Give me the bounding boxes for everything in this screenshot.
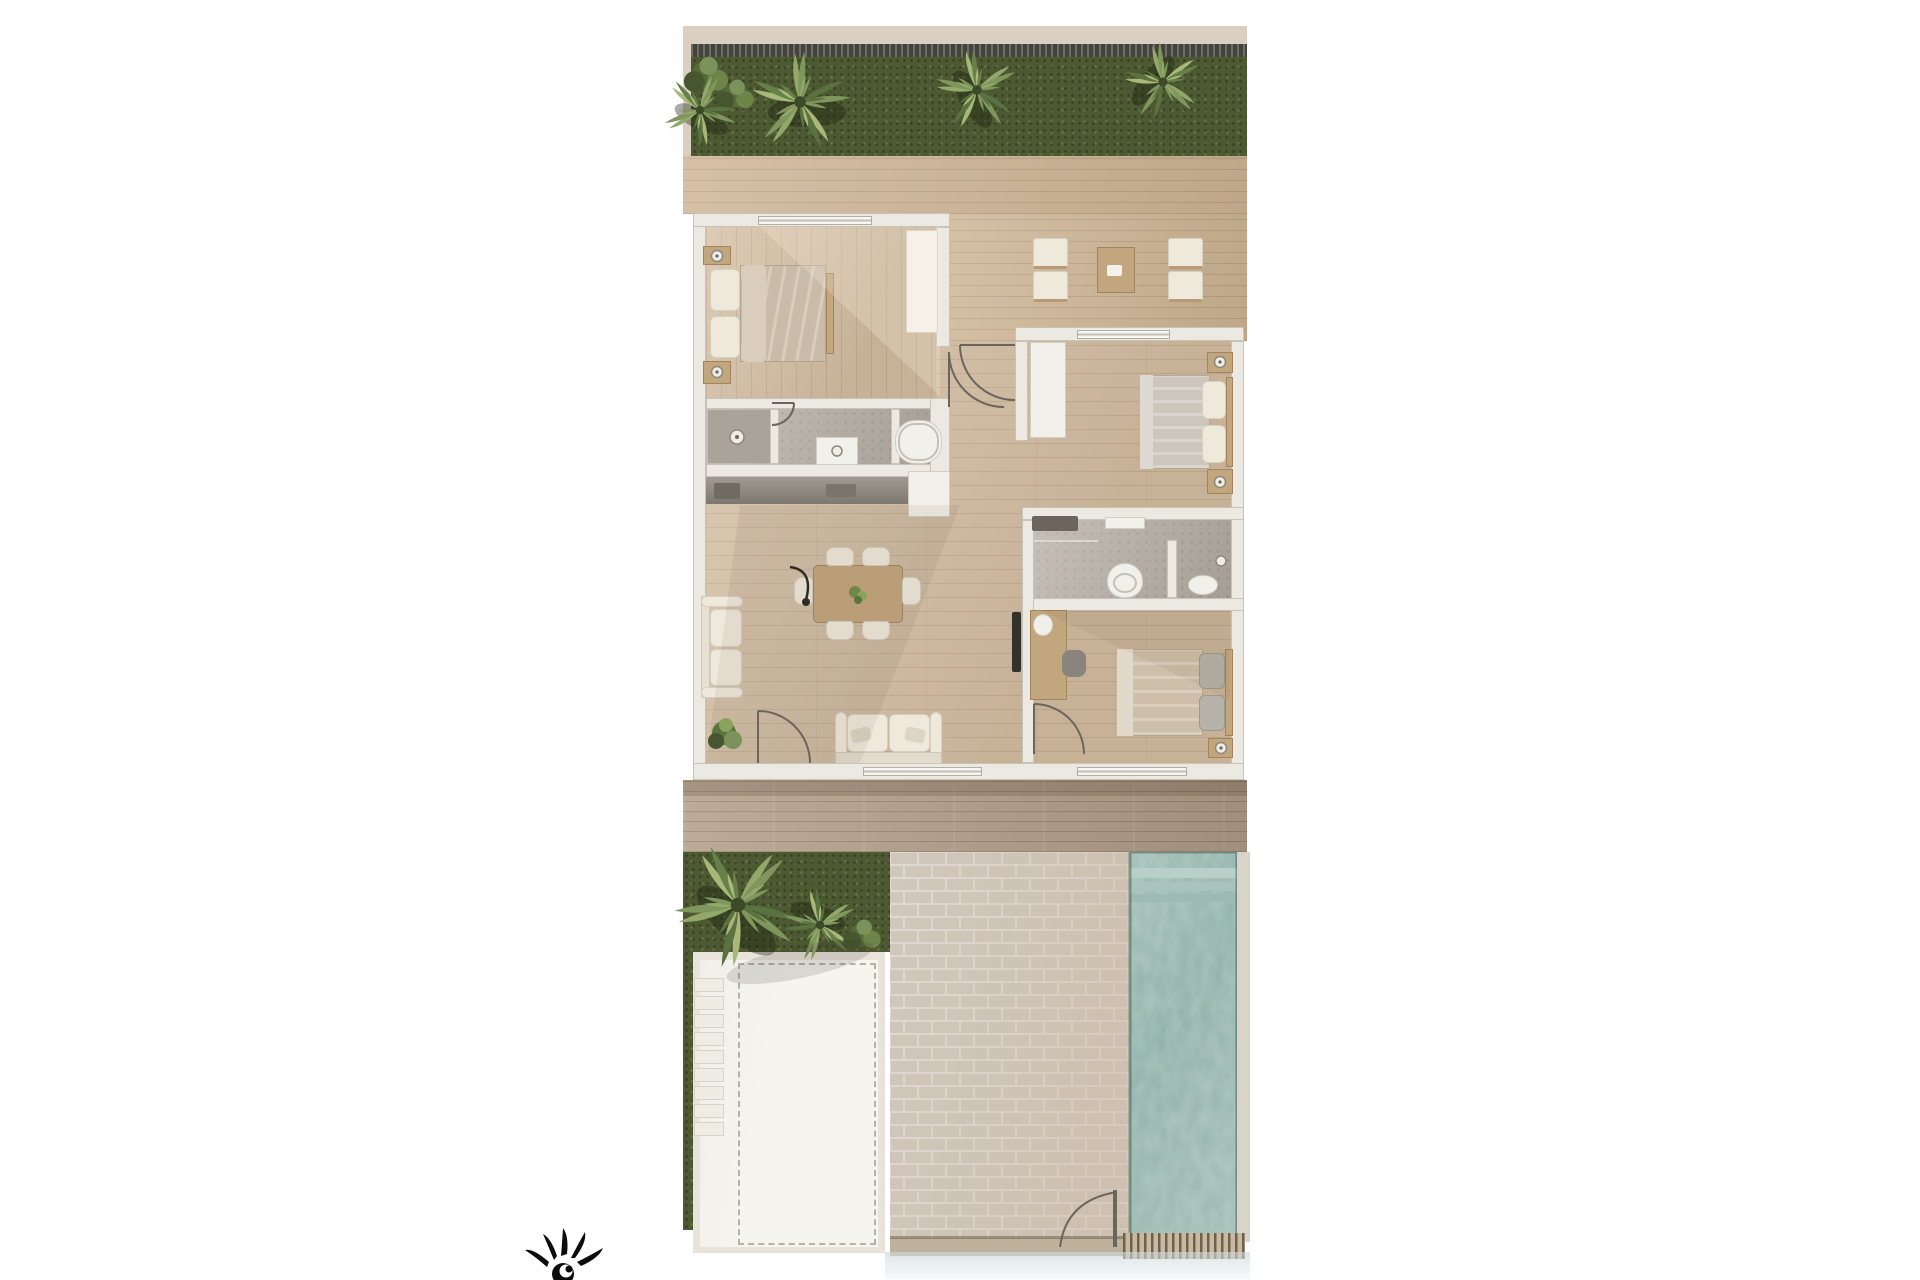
stepping-stone xyxy=(694,978,724,992)
bath-shelf xyxy=(1105,517,1145,529)
stepping-stone xyxy=(694,1104,724,1118)
stepping-stone xyxy=(694,996,724,1010)
stepping-stone xyxy=(694,1068,724,1082)
cooktop xyxy=(826,484,856,497)
bathtub xyxy=(895,420,942,464)
wall-hall-right xyxy=(1015,341,1028,441)
headboard xyxy=(1226,377,1233,467)
brick-path xyxy=(890,852,1130,1258)
basin xyxy=(1188,575,1218,595)
dining-chair xyxy=(826,621,854,640)
desk-lamp xyxy=(1033,614,1053,636)
loveseat xyxy=(835,712,942,764)
coffee-table xyxy=(1097,247,1135,293)
sofa-cushion xyxy=(710,609,742,647)
stepping-stone xyxy=(694,1050,724,1064)
vanity-sink xyxy=(816,437,858,465)
window-living xyxy=(863,767,982,776)
sheet-fold xyxy=(1117,649,1133,736)
boundary-wall-left-edge xyxy=(683,44,691,156)
wall-bathroom2-partition xyxy=(1167,540,1177,598)
stepping-stone xyxy=(694,1014,724,1028)
top-garden-grass xyxy=(691,57,1247,156)
swimming-pool xyxy=(1123,852,1250,1262)
vanity-dark xyxy=(1032,516,1078,531)
lounge-chair xyxy=(1168,271,1203,302)
lounge-chair xyxy=(1033,238,1068,269)
desk-chair xyxy=(1062,650,1086,677)
nightstand xyxy=(1207,352,1233,373)
stepping-stone xyxy=(694,1122,724,1136)
dining-chair xyxy=(826,547,854,566)
wardrobe-bedroom2 xyxy=(1030,342,1066,438)
pool-step xyxy=(1130,882,1237,891)
rear-deck xyxy=(683,780,1247,852)
sofa-chaise xyxy=(701,596,747,698)
table-tray xyxy=(1107,265,1122,276)
wardrobe-master xyxy=(906,230,938,333)
bed-2 xyxy=(1140,375,1233,469)
nightstand xyxy=(1207,469,1233,494)
folded-blanket xyxy=(742,265,766,362)
pillow xyxy=(710,269,740,311)
garden-side-strip xyxy=(683,852,693,1230)
lower-garden-grass xyxy=(683,852,890,952)
pad-dashed-outline xyxy=(738,963,876,1245)
top-terrace-deck xyxy=(683,156,1247,214)
dining-table xyxy=(813,565,903,623)
loveseat-back xyxy=(835,752,942,764)
pillow xyxy=(1202,381,1226,419)
shower-glass xyxy=(1034,540,1098,542)
bed-foot-bench xyxy=(826,273,834,354)
wall-bathroom1-top xyxy=(706,398,937,409)
pillow-gray xyxy=(1199,695,1225,731)
wall-master-right xyxy=(936,227,950,347)
kitchen-counter xyxy=(706,477,908,504)
tv-panel xyxy=(1012,612,1021,672)
boundary-wall-top xyxy=(683,26,1247,44)
headboard xyxy=(1225,649,1233,736)
lounge-chair xyxy=(1168,238,1203,269)
sofa-arm xyxy=(701,687,743,698)
window-master xyxy=(758,216,872,225)
shower-tray xyxy=(708,410,770,463)
toilet xyxy=(1107,563,1143,598)
stepping-stone xyxy=(694,1086,724,1100)
fridge-cabinet xyxy=(908,471,950,517)
window-bedroom3 xyxy=(1077,767,1187,776)
sofa-cushion xyxy=(710,649,742,686)
dining-chair xyxy=(862,621,890,640)
wall-shower-partition xyxy=(770,409,779,464)
pool-coping xyxy=(1237,852,1250,1242)
stepping-stone xyxy=(694,1032,724,1046)
pool-step xyxy=(1130,868,1237,878)
dining-chair xyxy=(794,577,813,605)
pergola-fence-strip xyxy=(691,44,1247,57)
pool-step xyxy=(1130,894,1237,902)
nightstand xyxy=(703,361,731,384)
pillow-gray xyxy=(1199,653,1225,689)
pillow xyxy=(710,316,740,358)
pillow xyxy=(1202,425,1226,463)
nightstand xyxy=(703,246,731,265)
sofa-back xyxy=(701,596,710,698)
floor-plan-render xyxy=(0,0,1920,1280)
window-bedroom2 xyxy=(1077,330,1170,339)
nightstand xyxy=(1208,738,1233,758)
lounge-chair xyxy=(1033,271,1068,302)
wall-bathroom1-bottom xyxy=(706,464,937,477)
sofa-arm xyxy=(701,596,743,607)
kitchen-sink xyxy=(714,483,740,499)
dining-chair xyxy=(862,547,890,566)
master-bed xyxy=(706,265,834,362)
bed-3 xyxy=(1117,647,1233,738)
ground-shadow-wash xyxy=(885,1252,1250,1280)
dining-chair xyxy=(902,577,921,605)
sheet-fold xyxy=(1140,375,1153,469)
sun-logo-icon xyxy=(525,1228,603,1280)
